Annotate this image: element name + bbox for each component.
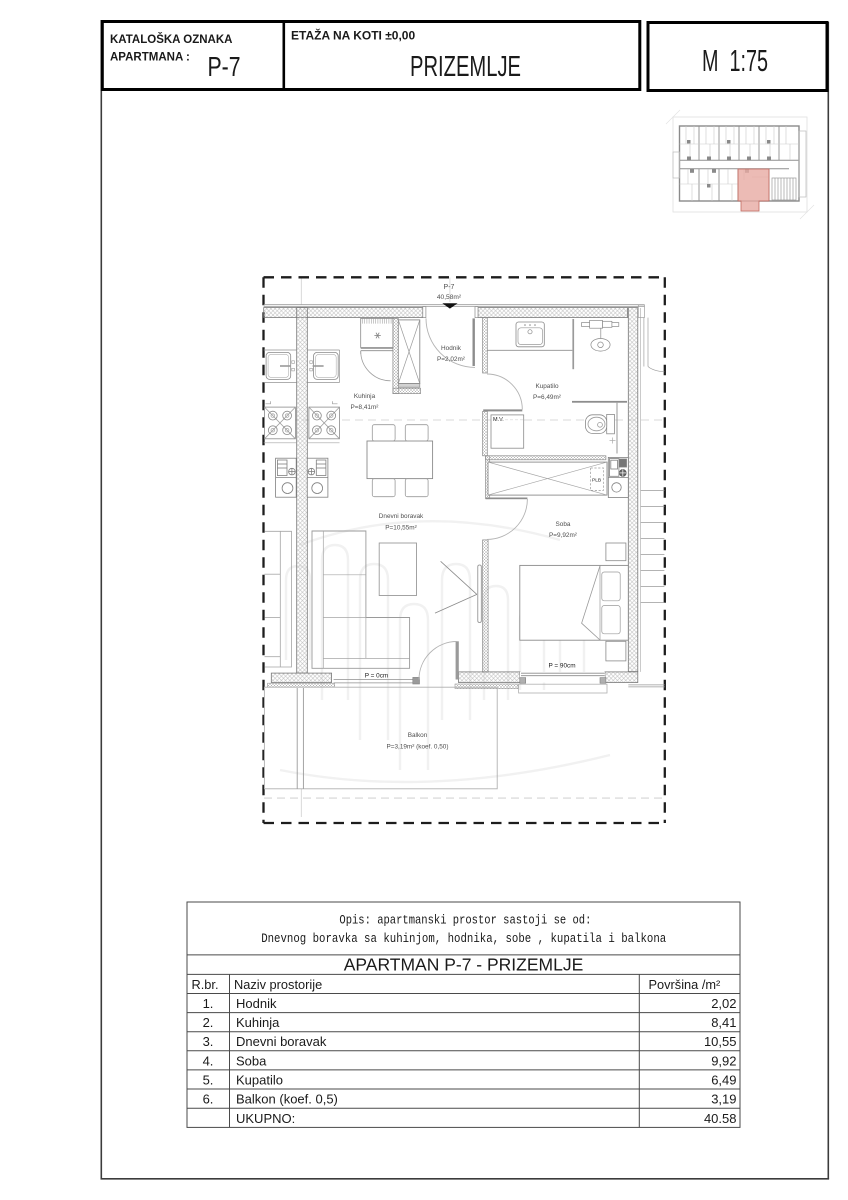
svg-text:ETAŽA NA KOTI ±0,00: ETAŽA NA KOTI ±0,00: [291, 28, 415, 43]
svg-text:40,58m²: 40,58m²: [437, 294, 462, 301]
svg-text:3.: 3.: [203, 1034, 214, 1049]
svg-text:M 1:75: M 1:75: [702, 43, 768, 78]
svg-text:4.: 4.: [203, 1053, 214, 1068]
svg-text:Kuhinja: Kuhinja: [236, 1015, 280, 1030]
svg-text:2.: 2.: [203, 1015, 214, 1030]
svg-text:Soba: Soba: [236, 1053, 267, 1068]
svg-text:40.58: 40.58: [704, 1111, 737, 1126]
svg-text:P=10,55m²: P=10,55m²: [385, 525, 416, 532]
svg-text:R.br.: R.br.: [192, 977, 219, 992]
svg-text:P=3,19m² (koef. 0,50): P=3,19m² (koef. 0,50): [387, 744, 449, 751]
svg-text:Hodnik: Hodnik: [441, 345, 462, 352]
svg-text:KATALOŠKA OZNAKA: KATALOŠKA OZNAKA: [110, 33, 232, 46]
svg-text:Hodnik: Hodnik: [236, 996, 277, 1011]
svg-text:Dnevni boravak: Dnevni boravak: [379, 513, 424, 520]
svg-text:5.: 5.: [203, 1072, 214, 1087]
svg-text:P = 0cm: P = 0cm: [365, 673, 389, 680]
svg-text:PRIZEMLJE: PRIZEMLJE: [410, 51, 521, 83]
svg-text:P=2,02m²: P=2,02m²: [437, 356, 465, 363]
svg-text:9,92: 9,92: [711, 1053, 736, 1068]
svg-text:P=9,92m²: P=9,92m²: [549, 532, 577, 539]
svg-text:Kupatilo: Kupatilo: [236, 1072, 283, 1087]
svg-text:UKUPNO:: UKUPNO:: [236, 1111, 295, 1126]
svg-text:P=6,49m²: P=6,49m²: [533, 394, 561, 401]
svg-text:Kuhinja: Kuhinja: [354, 393, 376, 400]
svg-text:P-7: P-7: [208, 51, 241, 82]
svg-text:Opis: apartmanski prostor sast: Opis: apartmanski prostor sastoji se od:: [339, 914, 591, 928]
svg-text:P = 90cm: P = 90cm: [548, 663, 575, 670]
svg-text:8,41: 8,41: [711, 1015, 736, 1030]
svg-text:6.: 6.: [203, 1092, 214, 1107]
svg-text:Površina /m²: Površina /m²: [649, 977, 722, 992]
svg-text:APARTMANA :: APARTMANA :: [110, 52, 190, 64]
svg-text:PLB: PLB: [592, 478, 601, 484]
svg-text:Dnevnog boravka sa kuhinjom, h: Dnevnog boravka sa kuhinjom, hodnika, so…: [261, 932, 666, 946]
svg-text:Dnevni boravak: Dnevni boravak: [236, 1034, 327, 1049]
svg-text:P-7: P-7: [444, 284, 455, 291]
svg-text:2,02: 2,02: [711, 996, 736, 1011]
svg-text:Kupatilo: Kupatilo: [535, 383, 559, 390]
svg-text:APARTMAN P-7 - PRIZEMLJE: APARTMAN P-7 - PRIZEMLJE: [344, 955, 584, 975]
svg-text:3,19: 3,19: [711, 1092, 736, 1107]
svg-text:6,49: 6,49: [711, 1072, 736, 1087]
svg-text:Balkon: Balkon: [408, 732, 428, 739]
svg-text:1.: 1.: [203, 996, 214, 1011]
svg-text:Soba: Soba: [556, 521, 571, 528]
svg-text:Naziv prostorije: Naziv prostorije: [234, 977, 322, 992]
svg-text:Balkon (koef. 0,5): Balkon (koef. 0,5): [236, 1092, 338, 1107]
svg-text:P=8,41m²: P=8,41m²: [351, 404, 379, 411]
svg-text:10,55: 10,55: [704, 1034, 737, 1049]
